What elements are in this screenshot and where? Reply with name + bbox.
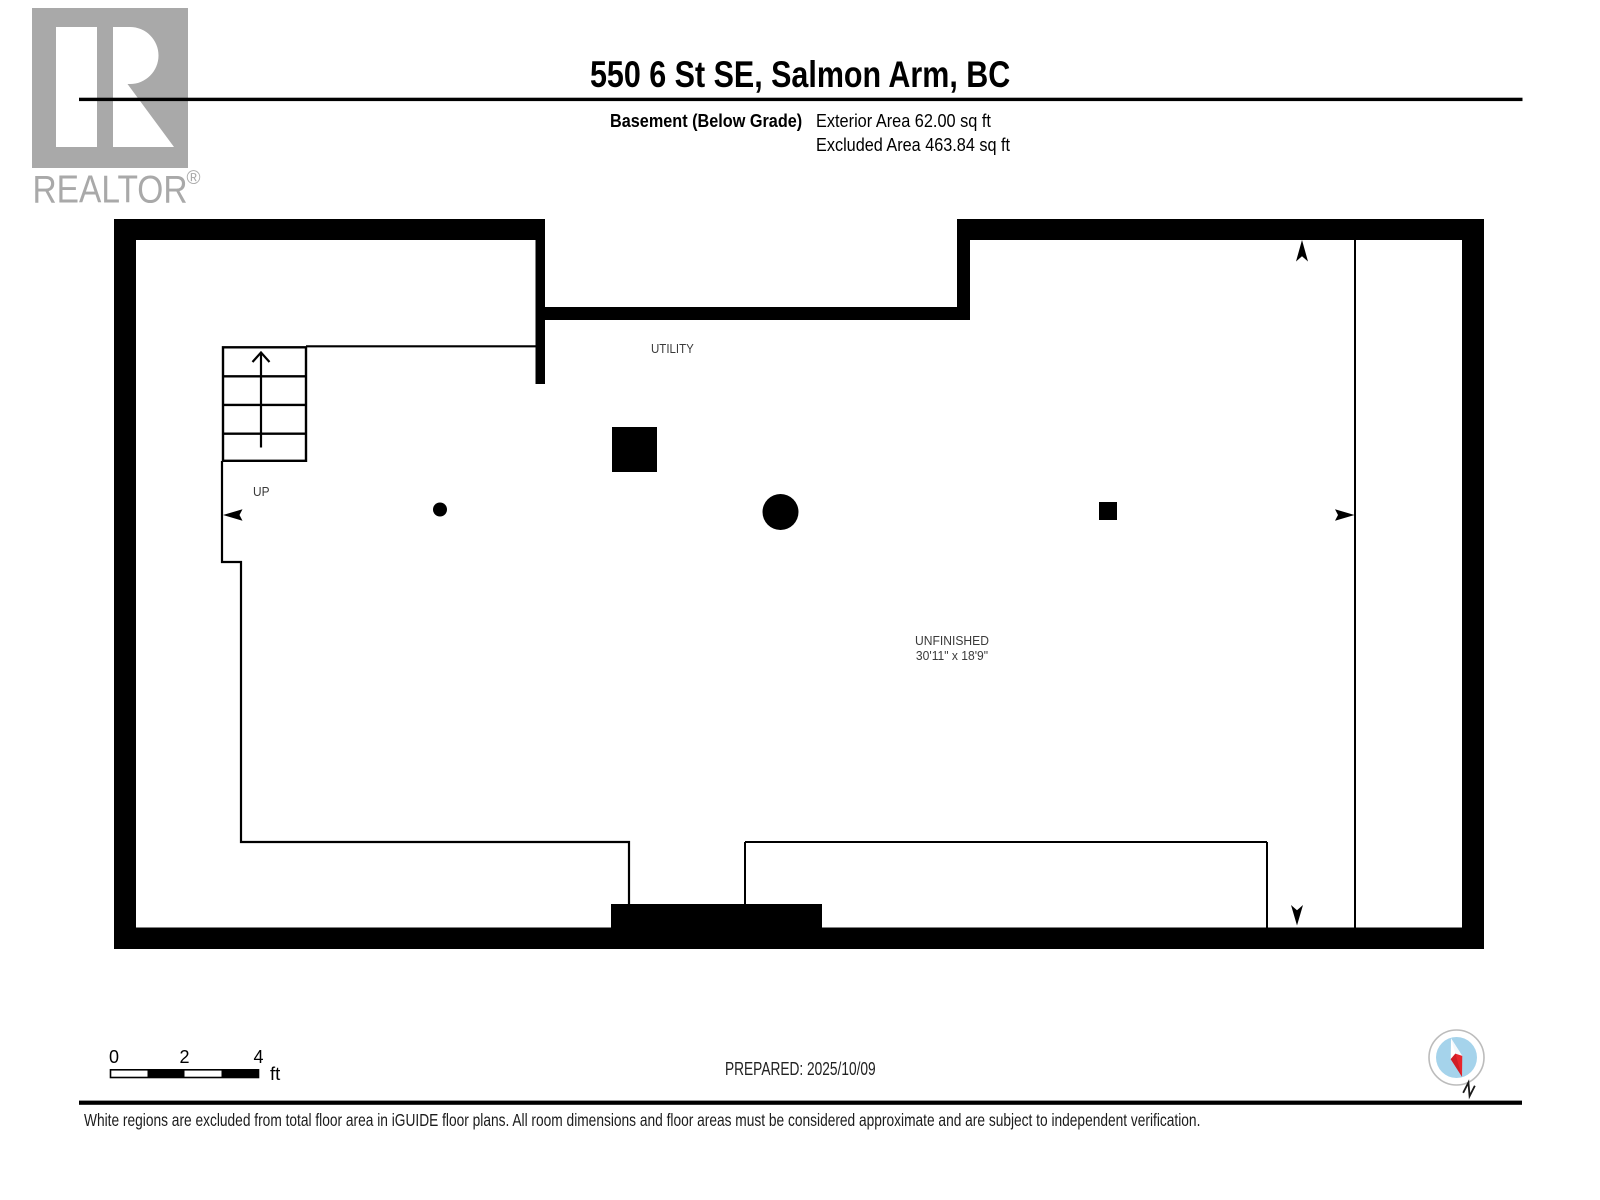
svg-text:®: ® [187, 168, 201, 189]
svg-text:REALTOR: REALTOR [33, 169, 188, 212]
